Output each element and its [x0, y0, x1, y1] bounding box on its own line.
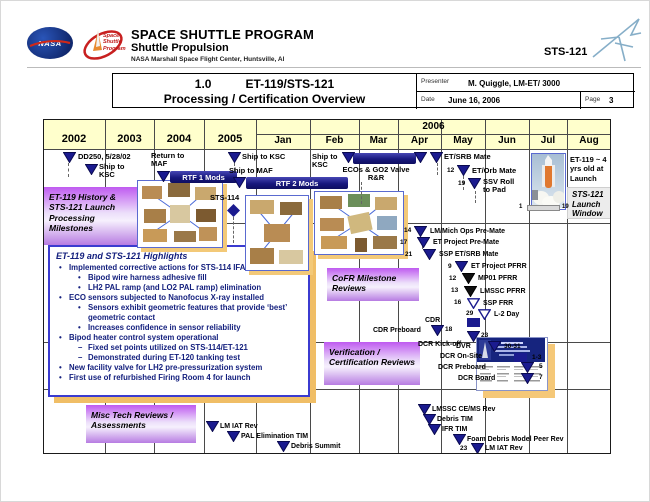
milestone-dcr_onsite-date: 1-3 — [532, 354, 541, 361]
milestone-lm_mich-date: 14 — [404, 227, 411, 234]
milestone-dd250-label: DD250, 5/28/02 — [78, 153, 131, 161]
milestone-dcr_board-date: 7 — [539, 374, 543, 381]
milestone-ifr_tim-label: IFR TIM — [442, 426, 467, 434]
slide: NASA Space Shuttle Program SPACE SHUTTLE… — [0, 0, 650, 502]
milestone-ssv_roll-label: SSV Roll to Pad — [483, 178, 519, 195]
highlights-list: Implemented corrective actions for STS-1… — [56, 263, 302, 383]
milestone-dcr_onsite-marker — [514, 353, 527, 362]
milestone-etsrb_mate-label: ET/SRB Mate — [444, 153, 491, 161]
month-header-jun: Jun — [485, 135, 529, 146]
highlight-bullet-item: LH2 PAL ramp (and LO2 PAL ramp) eliminat… — [56, 283, 302, 293]
milestone-pal_tim-marker — [227, 431, 240, 442]
milestone-sts114-label: STS-114 — [210, 194, 239, 202]
grid-line — [43, 149, 611, 150]
highlight-bullet-item: Fixed set points utilized on STS-114/ET-… — [56, 343, 302, 353]
milestone-cdr-label: CDR — [425, 317, 440, 325]
milestone-dcr_preboard-marker — [521, 362, 534, 373]
milestone-mp01_pfrr-date: 12 — [449, 275, 456, 282]
highlight-bullet-item: Bipod heater control system operational — [56, 333, 302, 343]
month-header-mar: Mar — [359, 135, 398, 146]
milestone-ssp_etsrb-marker — [423, 249, 436, 260]
highlight-bullet-item: Increases confidence in sensor reliabili… — [56, 323, 302, 333]
milestone-ship_maf-label: Ship to MAF — [229, 167, 273, 175]
collage-1-photos — [138, 181, 222, 247]
milestone-ssp_frr-date: 16 — [454, 299, 461, 306]
milestone-ship_ksc_2005-label: Ship to KSC — [242, 153, 285, 161]
milestone-ssv_roll-date: 19 — [458, 180, 465, 187]
milestone-foam_peer-marker — [453, 434, 466, 445]
milestone-cdr_preboard-label: CDR Preboard — [373, 327, 421, 335]
shuttle-launch-photo-art — [532, 154, 564, 208]
milestone-dcr_preboard-label: DCR Preboard — [438, 364, 486, 372]
milestone-dcr_board-label: DCR Board — [458, 375, 495, 383]
milestone-dvr-date: 30-31 — [504, 343, 521, 350]
milestone-dcr_preboard-date: 5 — [539, 363, 543, 370]
grid-line — [441, 119, 442, 454]
year-header-2005: 2005 — [204, 133, 256, 145]
milestone-drop-line — [437, 163, 438, 175]
launch-window-start: 1 — [519, 204, 522, 210]
highlight-bullet-item: ECO sensors subjected to Nanofocus X-ray… — [56, 293, 302, 303]
milestone-etorb_mate-date: 12 — [447, 167, 454, 174]
milestone-cdr_preboard-marker — [431, 325, 444, 336]
milestone-debris_summit-label: Debris Summit — [291, 443, 340, 451]
milestone-drop-line — [233, 217, 234, 243]
ecos-bar-label: ECOs & GO2 ValveR&R — [328, 166, 424, 183]
milestone-lm_iat_2-marker — [471, 443, 484, 454]
launch-window-bar — [527, 205, 560, 211]
milestone-et_premate-date: 17 — [400, 239, 407, 246]
highlight-bullet-item: Demonstrated during ET-120 tanking test — [56, 353, 302, 363]
year-header-2003: 2003 — [105, 133, 154, 145]
milestone-dvr-label: DVR — [456, 343, 471, 351]
milestone-ship_ksc_2002-label: Ship to KSC — [99, 163, 129, 180]
milestone-lmssc_cems-label: LMSSC CE/MS Rev — [432, 406, 495, 414]
milestone-ssp_etsrb-date: 21 — [405, 251, 412, 258]
cofr-box: CoFR Milestone Reviews — [327, 268, 419, 301]
highlight-bullet-item: Bipod wire harness adhesive fill — [56, 273, 302, 283]
milestone-mp01_pfrr-marker — [462, 273, 475, 284]
milestone-etsrb_mate-marker — [430, 152, 443, 163]
milestone-ecos_end-marker — [414, 152, 427, 163]
milestone-drop-line — [475, 191, 476, 203]
milestone-pal_tim-label: PAL Elimination TIM — [241, 433, 308, 441]
milestone-ecos_start-marker — [342, 152, 355, 163]
milestone-ship_ksc_feb-label: Ship to KSC — [312, 153, 342, 170]
milestone-l2_day-date: 29 — [466, 310, 473, 317]
collage-2-photos — [246, 196, 308, 270]
shuttle-launch-photo — [531, 153, 566, 210]
milestone-lm_mich-label: LM/Mich Ops Pre-Mate — [430, 228, 505, 236]
milestone-cdr_preboard-date: 18 — [445, 326, 452, 333]
milestone-l2_day-label: L-2 Day — [494, 311, 519, 319]
milestone-lm_mich-marker — [414, 226, 427, 237]
milestone-ifr_tim-marker — [428, 424, 441, 435]
milestone-sts114-marker — [227, 204, 240, 217]
milestone-etorb_mate-label: ET/Orb Mate — [472, 167, 516, 175]
grid-line — [310, 119, 311, 454]
milestone-et_pfrr-date: 9 — [448, 263, 452, 270]
milestone-et_pfrr-label: ET Project PFRR — [471, 263, 527, 271]
milestone-cdr-marker — [467, 318, 480, 327]
photo-collage-1 — [137, 180, 223, 248]
history-box: ET-119 History & STS-121 Launch Processi… — [44, 187, 139, 245]
milestone-drop-line — [361, 182, 362, 204]
ecos-bar — [353, 153, 416, 164]
launch-window-end: 19 — [562, 204, 569, 210]
month-header-aug: Aug — [567, 135, 611, 146]
milestone-debris_tim-label: Debris TIM — [437, 416, 473, 424]
milestone-dcr_board-marker — [521, 373, 534, 384]
rtf1-bar: RTF 1 Mods — [170, 171, 237, 183]
milestone-et_premate-label: ET Project Pre-Mate — [433, 239, 499, 247]
milestone-ship_ksc_2002-marker — [85, 164, 98, 175]
milestone-dcr_onsite-label: DCR On-Site — [440, 353, 482, 361]
milestone-dcr_kickoff-date: 23 — [481, 332, 488, 339]
collage-3-photos — [315, 192, 403, 254]
milestone-drop-line — [68, 163, 69, 177]
milestone-et_premate-marker — [417, 237, 430, 248]
month-header-may: May — [441, 135, 485, 146]
launch-window-box: STS-121 Launch Window — [567, 187, 611, 219]
milestone-debris_summit-marker — [277, 441, 290, 452]
milestone-lmssc_pfrr-label: LMSSC PFRR — [480, 288, 526, 296]
year-header-2004: 2004 — [154, 133, 204, 145]
milestone-ssp_frr-marker — [467, 298, 480, 309]
verification-box: Verification / Certification Reviews — [324, 342, 420, 385]
milestone-lmssc_pfrr-marker — [464, 286, 477, 297]
milestone-etorb_mate-marker — [457, 165, 470, 176]
milestone-ssp_etsrb-label: SSP ET/SRB Mate — [439, 251, 498, 259]
grid-line — [567, 119, 568, 454]
milestone-et_pfrr-marker — [455, 261, 468, 272]
timeline-chart: 2006 2002 2003 2004 2005 Jan Feb Mar Apr… — [1, 1, 650, 502]
photo-collage-2 — [245, 195, 309, 271]
milestone-dvr-marker — [488, 341, 501, 352]
et119-age-note: ET-119 ~ 4 yrs old at Launch — [570, 155, 610, 183]
highlight-bullet-item: New facility valve for LH2 pre-pressuriz… — [56, 363, 302, 373]
milestone-ship_ksc_2005-marker — [228, 152, 241, 163]
milestone-return_maf-label: Return to MAF — [151, 152, 195, 169]
milestone-dd250-marker — [63, 152, 76, 163]
milestone-dcr_kickoff-marker — [467, 331, 480, 342]
milestone-rtf1_start-marker — [157, 171, 170, 182]
highlight-bullet-item: First use of refurbished Firing Room 4 f… — [56, 373, 302, 383]
year-header-2002: 2002 — [43, 133, 105, 145]
month-header-jul: Jul — [529, 135, 567, 146]
month-header-jan: Jan — [256, 135, 310, 146]
milestone-dcr_kickoff-label: DCR Kick-off — [418, 341, 461, 349]
grid-line — [529, 119, 530, 454]
highlight-bullet-item: Sensors exhibit geometric features that … — [56, 303, 302, 323]
milestone-lm_iat_1-marker — [206, 421, 219, 432]
month-header-apr: Apr — [398, 135, 441, 146]
milestone-mp01_pfrr-label: MP01 PFRR — [478, 275, 517, 283]
milestone-lm_iat_2-date: 23 — [460, 445, 467, 452]
milestone-ssp_frr-label: SSP FRR — [483, 300, 513, 308]
year-header-2006: 2006 — [256, 121, 611, 132]
milestone-lm_iat_2-label: LM IAT Rev — [485, 445, 523, 453]
milestone-lm_iat_1-label: LM IAT Rev — [220, 423, 258, 431]
milestone-ssv_roll-marker — [468, 178, 481, 189]
milestone-lmssc_pfrr-date: 13 — [451, 287, 458, 294]
photo-collage-3 — [314, 191, 404, 255]
misc-box: Misc Tech Reviews / Assessments — [86, 405, 196, 443]
milestone-rtf2_start-marker — [233, 177, 246, 188]
month-header-feb: Feb — [310, 135, 359, 146]
